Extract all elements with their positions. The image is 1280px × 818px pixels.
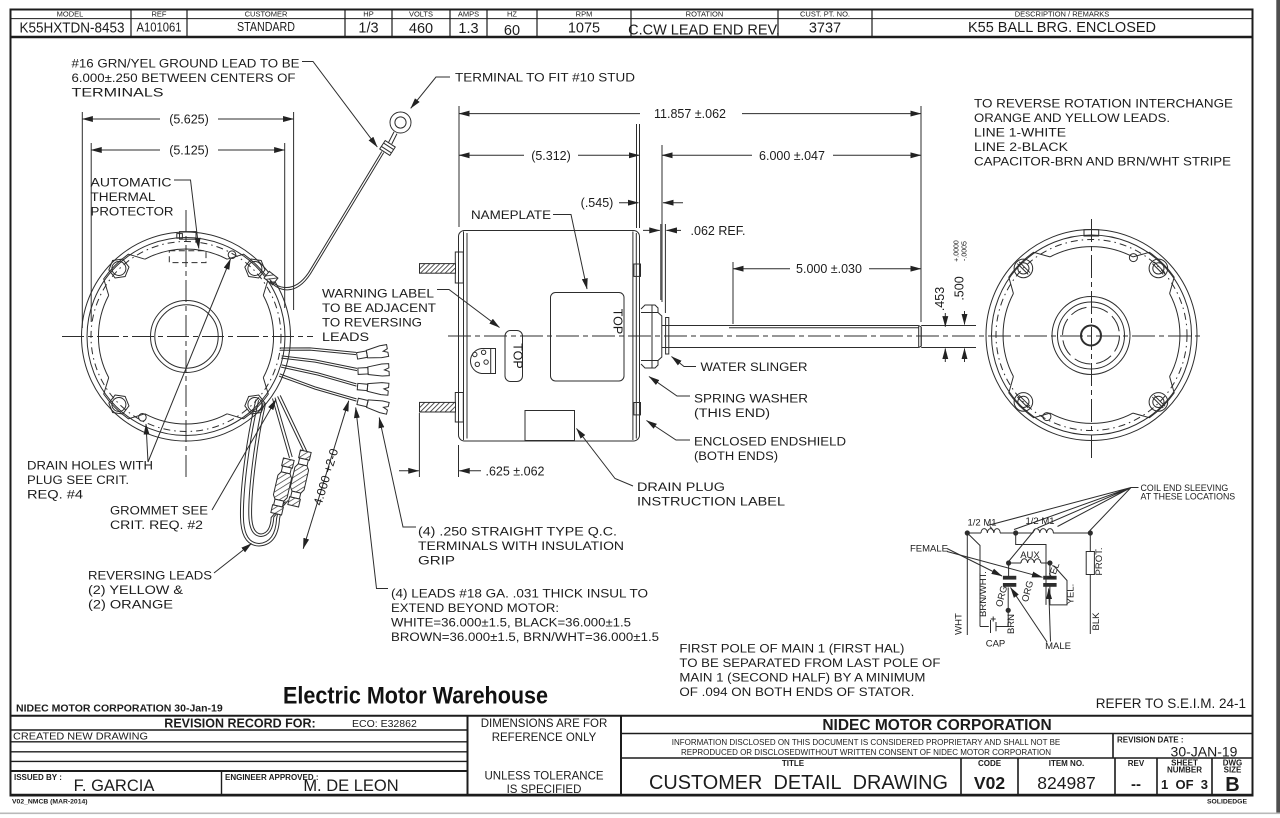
svg-text:--: --	[1131, 776, 1141, 793]
svg-text:TO BE ADJACENT: TO BE ADJACENT	[322, 301, 437, 315]
svg-text:INFORMATION DISCLOSED ON THIS: INFORMATION DISCLOSED ON THIS DOCUMENT I…	[672, 738, 1061, 747]
svg-text:B: B	[1225, 774, 1239, 796]
svg-text:PROT.: PROT.	[1094, 548, 1105, 576]
svg-text:(4) .250 STRAIGHT TYPE Q.C.: (4) .250 STRAIGHT TYPE Q.C.	[418, 525, 617, 539]
svg-text:.625 ±.062: .625 ±.062	[486, 464, 545, 478]
svg-text:CUST. PT. NO.: CUST. PT. NO.	[800, 10, 850, 19]
svg-text:AMPS: AMPS	[458, 10, 479, 19]
svg-text:.062 REF.: .062 REF.	[691, 224, 746, 238]
svg-text:LEADS: LEADS	[322, 330, 369, 344]
svg-text:(2) ORANGE: (2) ORANGE	[88, 598, 173, 612]
svg-text:AUTOMATIC: AUTOMATIC	[91, 176, 172, 190]
svg-text:CUSTOMER: CUSTOMER	[245, 10, 288, 19]
svg-text:AT THESE LOCATIONS: AT THESE LOCATIONS	[1141, 492, 1236, 502]
svg-text:ENCLOSED ENDSHIELD: ENCLOSED ENDSHIELD	[694, 435, 846, 449]
svg-text:FEMALE: FEMALE	[910, 544, 948, 555]
svg-text:.453: .453	[933, 287, 947, 311]
svg-text:C.CW LEAD END REV.: C.CW LEAD END REV.	[628, 23, 780, 39]
svg-text:REPRODUCED OR DISCLOSEDWITHOUT: REPRODUCED OR DISCLOSEDWITHOUT WRITTEN C…	[681, 748, 1051, 757]
svg-text:HP: HP	[363, 10, 373, 19]
svg-text:CODE: CODE	[978, 759, 1002, 768]
svg-text:1 OF 3: 1 OF 3	[1161, 777, 1208, 792]
svg-text:824987: 824987	[1037, 773, 1095, 793]
svg-text:(.545): (.545)	[581, 196, 614, 210]
svg-text:REQ. #4: REQ. #4	[27, 488, 83, 502]
svg-text:NUMBER: NUMBER	[1167, 766, 1202, 775]
svg-text:Electric Motor Warehouse: Electric Motor Warehouse	[283, 683, 548, 710]
svg-text:(5.312): (5.312)	[531, 149, 571, 163]
svg-text:NIDEC MOTOR CORPORATION: NIDEC MOTOR CORPORATION	[822, 717, 1051, 734]
svg-text:M. DE LEON: M. DE LEON	[303, 777, 398, 795]
svg-text:+.0000: +.0000	[954, 240, 961, 262]
svg-text:(THIS END): (THIS END)	[694, 406, 770, 420]
svg-text:1/2 M1: 1/2 M1	[967, 518, 996, 529]
svg-text:#16 GRN/YEL GROUND LEAD TO BE: #16 GRN/YEL GROUND LEAD TO BE	[72, 57, 300, 71]
svg-text:CAPACITOR-BRN AND BRN/WHT STRI: CAPACITOR-BRN AND BRN/WHT STRIPE	[974, 155, 1231, 169]
svg-text:YEL.: YEL.	[1066, 584, 1077, 605]
svg-text:V02: V02	[974, 773, 1005, 793]
svg-text:-.0005: -.0005	[962, 241, 969, 261]
svg-text:SOLIDEDGE: SOLIDEDGE	[1207, 799, 1247, 806]
svg-text:6.000 ±.047: 6.000 ±.047	[759, 149, 825, 163]
svg-text:.500: .500	[953, 276, 967, 300]
svg-text:NIDEC MOTOR CORPORATION 30-Jan: NIDEC MOTOR CORPORATION 30-Jan-19	[16, 703, 223, 715]
svg-text:STANDARD: STANDARD	[237, 19, 295, 34]
svg-text:(5.625): (5.625)	[169, 113, 209, 127]
svg-text:CUSTOMER DETAIL DRAWING: CUSTOMER DETAIL DRAWING	[649, 772, 948, 794]
svg-text:NAMEPLATE: NAMEPLATE	[471, 208, 551, 222]
svg-text:LINE 2-BLACK: LINE 2-BLACK	[974, 140, 1068, 154]
svg-text:TOP: TOP	[511, 343, 525, 368]
svg-text:TO REVERSING: TO REVERSING	[322, 316, 422, 330]
svg-text:WATER SLINGER: WATER SLINGER	[701, 360, 808, 374]
svg-text:TO BE SEPARATED FROM LAST POLE: TO BE SEPARATED FROM LAST POLE OF	[679, 656, 940, 670]
svg-text:CRIT. REQ. #2: CRIT. REQ. #2	[110, 518, 203, 532]
svg-text:WHT: WHT	[954, 613, 965, 635]
svg-text:BROWN=36.000±1.5, BRN/WHT=36.0: BROWN=36.000±1.5, BRN/WHT=36.000±1.5	[391, 630, 659, 644]
svg-text:TERMINAL TO FIT #10 STUD: TERMINAL TO FIT #10 STUD	[455, 71, 635, 85]
svg-text:MALE: MALE	[1045, 641, 1071, 652]
svg-text:1075: 1075	[568, 21, 600, 37]
svg-text:GROMMET SEE: GROMMET SEE	[110, 504, 208, 518]
svg-text:30-JAN-19: 30-JAN-19	[1171, 744, 1238, 760]
svg-text:REF: REF	[152, 10, 167, 19]
svg-text:1.3: 1.3	[458, 21, 478, 37]
svg-text:SPRING WASHER: SPRING WASHER	[694, 392, 808, 406]
svg-text:REV: REV	[1128, 759, 1145, 768]
svg-text:1/3: 1/3	[358, 21, 378, 37]
svg-text:3737: 3737	[809, 21, 841, 37]
svg-text:INSTRUCTION LABEL: INSTRUCTION LABEL	[637, 495, 785, 509]
svg-text:PROTECTOR: PROTECTOR	[91, 205, 174, 219]
svg-text:IS SPECIFIED: IS SPECIFIED	[507, 784, 582, 796]
svg-text:EXTEND BEYOND MOTOR:: EXTEND BEYOND MOTOR:	[391, 601, 559, 615]
svg-text:DIMENSIONS ARE FOR: DIMENSIONS ARE FOR	[481, 718, 608, 730]
svg-text:REVISION RECORD FOR:: REVISION RECORD FOR:	[164, 717, 315, 731]
svg-text:REFER TO S.E.I.M. 24-1: REFER TO S.E.I.M. 24-1	[1096, 696, 1246, 711]
svg-text:CREATED NEW DRAWING: CREATED NEW DRAWING	[13, 732, 148, 743]
svg-text:WHITE=36.000±1.5, BLACK=36.000: WHITE=36.000±1.5, BLACK=36.000±1.5	[391, 616, 631, 630]
svg-text:BRN/WHT.: BRN/WHT.	[978, 571, 989, 617]
svg-text:460: 460	[409, 21, 433, 37]
svg-text:DESCRIPTION / REMARKS: DESCRIPTION / REMARKS	[1015, 10, 1110, 19]
svg-text:AUX: AUX	[1020, 550, 1040, 561]
svg-text:DRAIN HOLES WITH: DRAIN HOLES WITH	[27, 459, 153, 473]
svg-text:TERMINALS WITH INSULATION: TERMINALS WITH INSULATION	[418, 539, 624, 553]
svg-text:GRIP: GRIP	[418, 554, 455, 568]
svg-text:(2) YELLOW &: (2) YELLOW &	[88, 583, 183, 597]
svg-text:ORANGE AND YELLOW LEADS.: ORANGE AND YELLOW LEADS.	[974, 111, 1170, 125]
svg-text:DRAIN PLUG: DRAIN PLUG	[637, 480, 725, 494]
svg-text:HZ: HZ	[507, 10, 517, 19]
svg-text:PLUG SEE CRIT.: PLUG SEE CRIT.	[27, 473, 129, 487]
svg-text:BRN: BRN	[1006, 614, 1017, 634]
svg-text:ISSUED BY :: ISSUED BY :	[14, 773, 62, 782]
svg-text:ECO: E32862: ECO: E32862	[352, 718, 417, 730]
svg-text:MAIN 1 (SECOND HALF) BY A MINI: MAIN 1 (SECOND HALF) BY A MINIMUM	[679, 671, 925, 685]
svg-text:LINE 1-WHITE: LINE 1-WHITE	[974, 126, 1066, 140]
svg-text:ITEM NO.: ITEM NO.	[1049, 759, 1085, 768]
svg-text:(4) LEADS #18 GA. .031 THICK I: (4) LEADS #18 GA. .031 THICK INSUL TO	[391, 587, 648, 601]
svg-text:11.857 ±.062: 11.857 ±.062	[654, 107, 726, 121]
svg-text:1/2 M1: 1/2 M1	[1025, 516, 1054, 527]
svg-text:FIRST POLE OF MAIN 1 (FIRST HA: FIRST POLE OF MAIN 1 (FIRST HAL)	[679, 642, 904, 656]
svg-text:ROTATION: ROTATION	[686, 10, 724, 19]
svg-text:MODEL: MODEL	[57, 10, 84, 19]
svg-text:6.000±.250 BETWEEN CENTERS OF: 6.000±.250 BETWEEN CENTERS OF	[72, 71, 296, 85]
svg-text:TITLE: TITLE	[782, 759, 805, 768]
svg-text:VOLTS: VOLTS	[409, 10, 433, 19]
svg-text:A101061: A101061	[137, 21, 182, 35]
svg-text:RPM: RPM	[576, 10, 593, 19]
svg-text:60: 60	[504, 23, 520, 39]
svg-text:UNLESS TOLERANCE: UNLESS TOLERANCE	[484, 771, 603, 783]
svg-text:K55HXTDN-8453: K55HXTDN-8453	[20, 21, 125, 37]
svg-text:TOP: TOP	[611, 309, 625, 334]
svg-text:TERMINALS: TERMINALS	[72, 86, 164, 100]
svg-text:BLK: BLK	[1091, 612, 1102, 631]
svg-text:REFERENCE ONLY: REFERENCE ONLY	[492, 732, 597, 744]
svg-text:F. GARCIA: F. GARCIA	[74, 777, 155, 795]
svg-text:TO REVERSE ROTATION INTERCHANG: TO REVERSE ROTATION INTERCHANGE	[974, 97, 1233, 111]
svg-text:THERMAL: THERMAL	[91, 190, 156, 204]
svg-text:(5.125): (5.125)	[169, 144, 209, 158]
svg-text:V02_NMCB (MAR-2014): V02_NMCB (MAR-2014)	[12, 799, 88, 806]
svg-text:WARNING LABEL: WARNING LABEL	[322, 287, 434, 301]
svg-text:OF .094 ON BOTH ENDS OF STATOR: OF .094 ON BOTH ENDS OF STATOR.	[679, 685, 914, 699]
svg-text:REVERSING LEADS: REVERSING LEADS	[88, 569, 212, 583]
svg-text:(BOTH ENDS): (BOTH ENDS)	[694, 449, 778, 463]
svg-text:5.000 ±.030: 5.000 ±.030	[796, 262, 862, 276]
svg-text:CAP: CAP	[986, 639, 1006, 650]
svg-text:K55 BALL BRG. ENCLOSED: K55 BALL BRG. ENCLOSED	[968, 20, 1156, 36]
